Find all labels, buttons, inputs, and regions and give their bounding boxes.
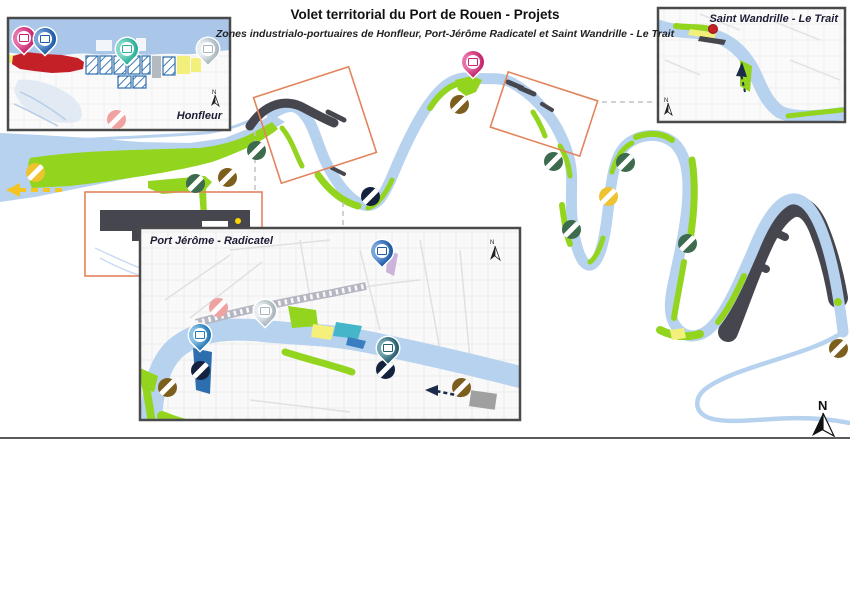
marker-pin-btp[interactable] bbox=[197, 38, 219, 68]
marker-pin-chimie[interactable] bbox=[377, 337, 399, 367]
svg-text:N: N bbox=[818, 398, 827, 413]
inset-label-port-jerome: Port Jérôme - Radicatel bbox=[150, 235, 370, 247]
marker-acquisition-partenariat[interactable] bbox=[158, 378, 177, 397]
svg-text:N: N bbox=[490, 240, 494, 246]
inset-saint-wandrille: N bbox=[658, 8, 845, 122]
marker-restauration-ecologique[interactable] bbox=[562, 220, 581, 239]
marker-acquisition-partenariat[interactable] bbox=[218, 168, 237, 187]
marker-restauration-ecologique[interactable] bbox=[678, 234, 697, 253]
marker-infrastructures-portuaires[interactable] bbox=[361, 187, 380, 206]
svg-text:N: N bbox=[212, 90, 216, 96]
port-rouen-project-map: N bbox=[0, 0, 850, 591]
marker-pin-logistique[interactable] bbox=[116, 38, 138, 68]
marker-restauration-ecologique[interactable] bbox=[616, 153, 635, 172]
inset-label-saint-wandrille: Saint Wandrille - Le Trait bbox=[655, 13, 838, 25]
marker-infrastructures-portuaires[interactable] bbox=[191, 361, 210, 380]
marker-restauration-ecologique[interactable] bbox=[544, 152, 563, 171]
marker-pin-conteneur[interactable] bbox=[189, 324, 211, 354]
page-subtitle: Zones industrialo-portuaires de Honfleur… bbox=[0, 28, 850, 40]
marker-dragage-chenal[interactable] bbox=[26, 163, 45, 182]
marker-acquisition-partenariat[interactable] bbox=[452, 378, 471, 397]
inset-label-honfleur: Honfleur bbox=[110, 110, 222, 122]
marker-pin-energie[interactable] bbox=[371, 240, 393, 270]
marker-dragage-chenal[interactable] bbox=[599, 187, 618, 206]
marker-acquisition-partenariat[interactable] bbox=[450, 95, 469, 114]
marker-pin-passagers[interactable] bbox=[462, 51, 484, 81]
marker-restauration-ecologique[interactable] bbox=[186, 174, 205, 193]
marker-pin-btp[interactable] bbox=[254, 300, 276, 330]
map-area: N bbox=[0, 0, 850, 437]
legend: Conteneur Logistique Eco-industrie et pr… bbox=[0, 437, 850, 591]
marker-restauration-ecologique[interactable] bbox=[247, 141, 266, 160]
marker-acquisition-partenariat[interactable] bbox=[829, 339, 848, 358]
marker-reseau-ferre[interactable] bbox=[209, 298, 228, 317]
